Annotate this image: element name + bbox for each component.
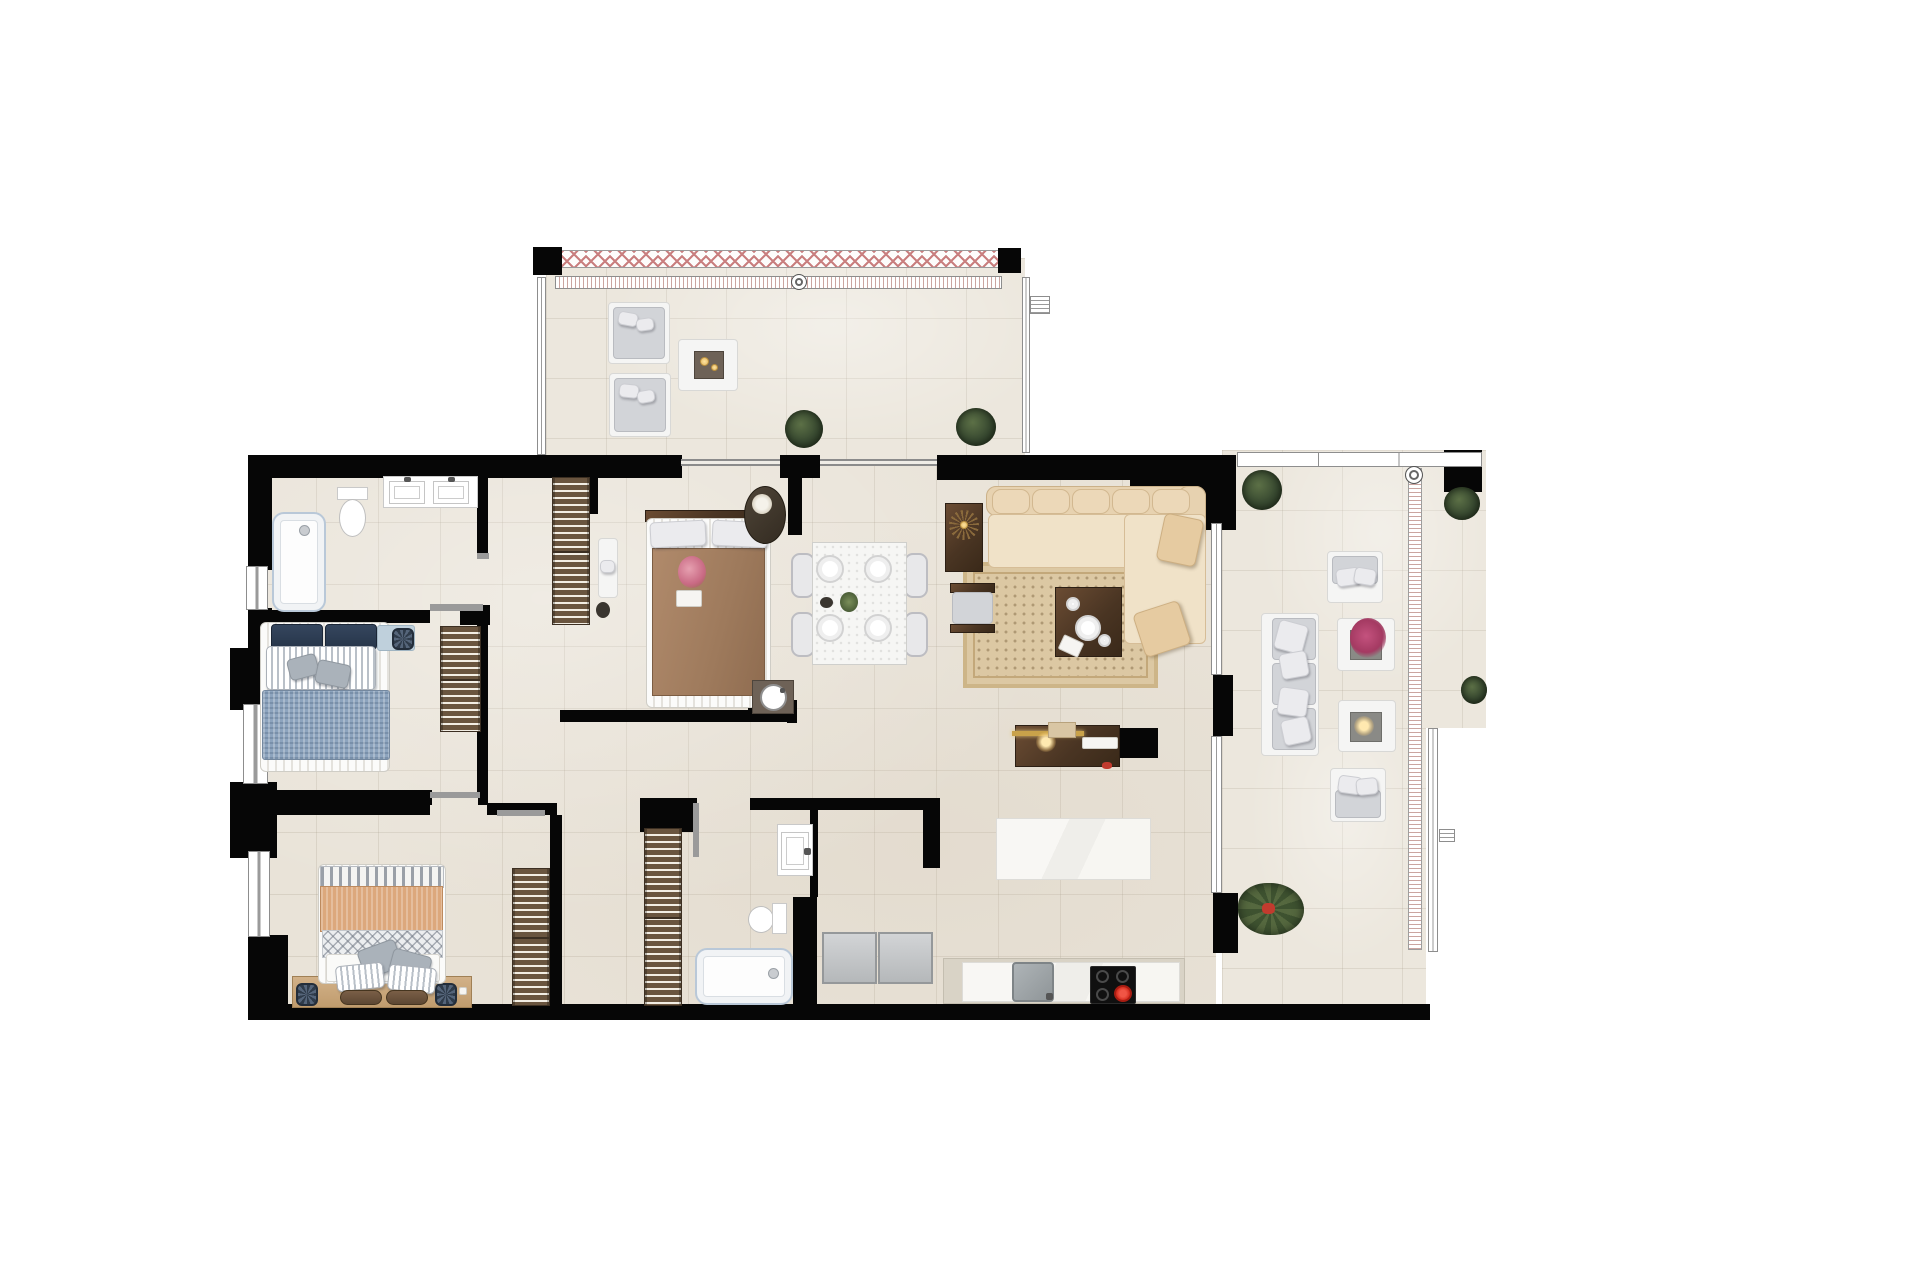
topiary-plant-2 — [956, 408, 996, 446]
sliding-door-master — [681, 459, 780, 471]
bed-master-flowers — [678, 556, 706, 588]
glass-wall-living — [1211, 523, 1222, 675]
wall-bath2-entry — [640, 798, 697, 832]
window-bath1 — [246, 566, 268, 610]
topiary-plant-3 — [1242, 470, 1282, 510]
vanity-sink-left — [389, 481, 425, 504]
sofa-cushion-4 — [1112, 489, 1150, 514]
bed3-tray-right — [435, 983, 457, 1006]
wardrobe-master — [552, 477, 590, 625]
bed3-tray-left — [296, 983, 318, 1006]
hob-ring-3 — [1096, 988, 1109, 1001]
lattice-railing-top — [562, 250, 998, 268]
terrace-candle-1 — [700, 357, 709, 366]
bed3-blanket-tan — [320, 886, 443, 932]
dining-chair-4 — [904, 612, 928, 657]
vanity-oval-blossom — [752, 494, 772, 514]
toilet-2-bowl — [748, 906, 774, 933]
outdoor-table-2-candle — [1354, 716, 1374, 736]
white-railing-terrace2 — [1237, 452, 1482, 467]
wall-laundry-right — [923, 798, 940, 868]
bed3-pillow-striped-1 — [335, 962, 385, 993]
outdoor-sofa-pillow-2 — [1278, 650, 1310, 680]
wall-left-1 — [248, 455, 272, 570]
side-table-star-center — [960, 521, 968, 529]
hob-ring-2 — [1116, 970, 1129, 983]
topiary-plant-1 — [785, 410, 823, 448]
glass-wall-kitchen — [1211, 736, 1222, 893]
wall-bath-divider — [793, 897, 817, 1005]
floor-terrace-right-lower — [1222, 728, 1426, 1006]
wardrobe-bedroom3 — [512, 868, 550, 1006]
dining-plate-2 — [816, 614, 844, 642]
outdoor-sofa-pillow-3 — [1276, 686, 1310, 718]
wardrobe-bedroom2 — [440, 626, 481, 732]
wall-laundry-top — [817, 798, 923, 810]
awning-strip-right — [1408, 468, 1422, 950]
awning-strip-top — [555, 276, 1002, 289]
gate-handle-icon — [1439, 829, 1455, 842]
sideboard-red-item — [1102, 762, 1112, 769]
bed-master-duvet — [652, 548, 765, 696]
door-bath2 — [693, 803, 699, 857]
bench-master-pillow — [600, 560, 615, 573]
wall-living-stub — [1120, 728, 1158, 758]
hob-ring-red — [1114, 985, 1132, 1002]
vanity-faucet-left — [404, 477, 411, 482]
wall-bedroom3-right — [550, 815, 562, 1005]
topiary-plant-4 — [1444, 487, 1480, 520]
kitchen-faucet — [1046, 993, 1053, 1000]
outdoor-armchair-bottom-pillow-2 — [1355, 777, 1379, 796]
door-bath1-cap — [477, 553, 489, 559]
wall-left-5 — [248, 935, 288, 1007]
vent-box-icon — [1030, 296, 1050, 314]
bed-master-pillow-l — [649, 520, 706, 549]
coffee-table-dish-2 — [1098, 634, 1111, 647]
vanity-sink-right — [433, 481, 469, 504]
wall-top-b — [937, 455, 1236, 480]
wardrobe-hall — [644, 828, 682, 1006]
glass-balustrade-terrace-left — [537, 277, 546, 455]
wall-terrace-post-tr — [998, 248, 1021, 273]
floor-top-terrace — [546, 258, 1025, 480]
glass-balustrade-terrace2 — [1428, 728, 1438, 952]
toilet-2-tank — [772, 903, 787, 934]
nightstand-bed2-decor — [392, 628, 414, 650]
wall-master-right — [788, 455, 802, 535]
sofa-cushion-3 — [1072, 489, 1110, 514]
wc-faucet — [780, 688, 785, 693]
glass-balustrade-terrace-right — [1022, 277, 1030, 453]
awning-motor-symbol-2 — [1405, 466, 1423, 484]
wall-terrace-post-tl — [533, 247, 562, 275]
sofa-cushion-1 — [992, 489, 1030, 514]
coffee-table-dish-1 — [1066, 597, 1080, 611]
wall-bath2-top — [750, 798, 820, 810]
bed3-bolster-1 — [340, 990, 382, 1005]
bed3-mug — [459, 987, 467, 995]
wall-top-a — [248, 455, 682, 478]
window-bedroom3 — [248, 851, 270, 937]
bathtub-2-drain — [768, 968, 779, 979]
floorplan-canvas — [0, 0, 1920, 1280]
bed2-duvet — [262, 690, 390, 760]
hob-ring-1 — [1096, 970, 1109, 983]
kitchen-island — [996, 818, 1151, 880]
terrace-candle-2 — [711, 364, 718, 371]
kitchen-worktop — [962, 962, 1180, 1002]
armchair-living-front — [950, 624, 995, 633]
door-bedroom2 — [430, 792, 480, 798]
vanity-faucet-right — [448, 477, 455, 482]
bathtub-2 — [695, 948, 793, 1005]
door-suite — [430, 604, 483, 611]
sideboard-box — [1048, 722, 1076, 738]
bed-master-tray — [676, 590, 702, 607]
bed3-scallop-band — [320, 866, 444, 888]
plant-pot-master — [596, 602, 610, 618]
terrace-side-table-tray — [694, 351, 724, 379]
wall-bath1-right — [477, 477, 488, 557]
armchair-living-seat — [952, 592, 993, 624]
sofa-cushion-5 — [1152, 489, 1190, 514]
dryer — [878, 932, 933, 984]
wall-glass-stub-3 — [1213, 893, 1238, 953]
dining-cutlery — [820, 597, 833, 608]
bed3-bolster-2 — [386, 990, 428, 1005]
coffee-table-tray — [1075, 615, 1101, 641]
wall-glass-stub-2 — [1213, 675, 1233, 736]
bathtub-master-drain — [299, 525, 310, 536]
tropical-plant-center — [1262, 903, 1275, 914]
sliding-door-living — [820, 459, 937, 471]
toilet-master-bowl — [339, 499, 366, 537]
dining-plate-3 — [864, 555, 892, 583]
dining-centerpiece — [840, 592, 858, 612]
outdoor-table-1-flowers — [1350, 618, 1386, 658]
sideboard-tray — [1082, 737, 1118, 749]
sink-bath2-faucet — [804, 848, 811, 855]
wall-master-ward — [590, 478, 598, 514]
door-bedroom3 — [497, 810, 545, 816]
topiary-plant-5 — [1461, 676, 1487, 704]
awning-motor-symbol — [791, 274, 807, 290]
washer — [822, 932, 877, 984]
outdoor-armchair-top-pillow-2 — [1353, 566, 1378, 587]
sofa-cushion-2 — [1032, 489, 1070, 514]
wall-glass-stub-1 — [1213, 455, 1233, 523]
dining-plate-4 — [864, 614, 892, 642]
dining-chair-3 — [904, 553, 928, 598]
wall-bedroom3-top-a — [255, 803, 430, 815]
dining-plate-1 — [816, 555, 844, 583]
